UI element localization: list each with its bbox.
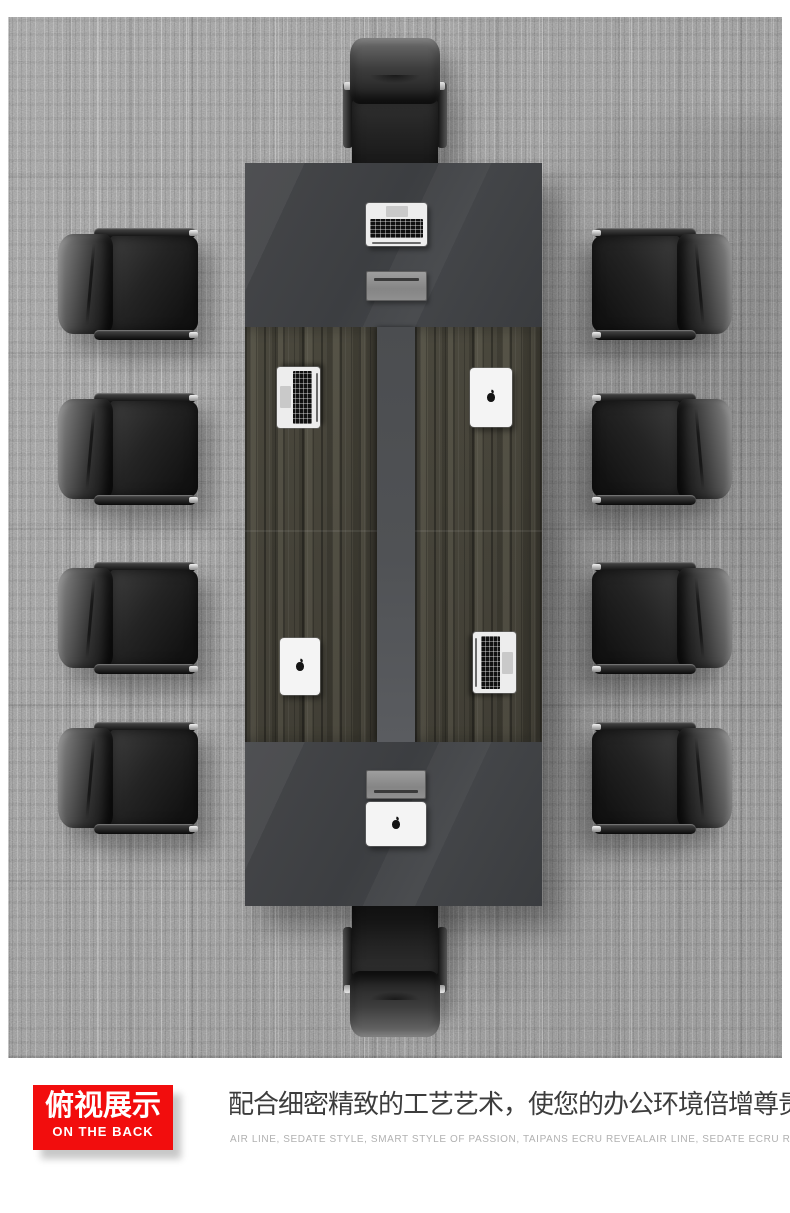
chair-armrest	[94, 330, 196, 340]
badge-title: 俯视展示	[33, 1090, 173, 1123]
chair-armrest	[94, 664, 196, 674]
chair-backrest	[677, 568, 732, 668]
tablet-mid-right	[470, 368, 512, 427]
chair-backrest	[58, 568, 113, 668]
chair-left-4	[58, 722, 198, 834]
chair-headrest	[350, 38, 440, 104]
chair-backrest	[677, 728, 732, 828]
chair-left-2	[58, 393, 198, 505]
chair-seat	[110, 570, 198, 666]
chair-armrest	[94, 495, 196, 505]
chair-backrest	[58, 234, 113, 334]
laptop-screen-edge	[316, 373, 318, 422]
laptop-screen-edge	[372, 242, 421, 244]
cable-box-top	[366, 271, 427, 301]
laptop-trackpad	[502, 652, 513, 674]
chair-armrest	[594, 330, 696, 340]
laptop-trackpad	[386, 206, 408, 217]
laptop-closed-bottom	[366, 802, 426, 846]
laptop-screen-edge	[475, 638, 477, 687]
caption-band: 俯视展示 ON THE BACK 配合细密精致的工艺艺术，使您的办公环境倍增尊贵…	[0, 1058, 790, 1213]
badge-subtitle: ON THE BACK	[33, 1123, 173, 1140]
cable-box-bottom	[366, 770, 426, 799]
laptop-trackpad	[280, 387, 291, 409]
chair-seat	[592, 236, 680, 332]
laptop-open-mid-left	[277, 367, 320, 428]
chair-armrest	[594, 824, 696, 834]
chair-right-4	[592, 722, 732, 834]
chair-seat	[592, 401, 680, 497]
product-photo-top-view	[8, 17, 782, 1058]
laptop-keyboard	[481, 636, 500, 689]
chair-right-3	[592, 562, 732, 674]
chair-seat	[592, 730, 680, 826]
chair-seat	[110, 730, 198, 826]
chair-armrest	[594, 495, 696, 505]
chair-left-3	[58, 562, 198, 674]
cable-slot	[374, 278, 419, 281]
laptop-keyboard	[370, 219, 423, 238]
chair-backrest	[677, 234, 732, 334]
laptop-open-low-right	[473, 632, 516, 693]
chair-headrest	[350, 971, 440, 1037]
apple-logo-icon	[487, 393, 495, 402]
chair-backrest	[58, 399, 113, 499]
tablet-low-left	[280, 638, 320, 695]
chair-armrest	[94, 824, 196, 834]
caption-headline: 配合细密精致的工艺艺术，使您的办公环境倍增尊贵气派	[228, 1089, 780, 1119]
apple-logo-icon	[392, 820, 400, 829]
chair-left-1	[58, 228, 198, 340]
table-center-runner	[377, 327, 415, 742]
chair-backrest	[677, 399, 732, 499]
chair-seat	[110, 401, 198, 497]
chair-seat	[592, 570, 680, 666]
chair-right-2	[592, 393, 732, 505]
chair-seat	[110, 236, 198, 332]
apple-logo-icon	[296, 662, 304, 671]
section-badge: 俯视展示 ON THE BACK	[33, 1085, 173, 1150]
product-detail-page: 俯视展示 ON THE BACK 配合细密精致的工艺艺术，使您的办公环境倍增尊贵…	[0, 0, 790, 1213]
chair-backrest	[58, 728, 113, 828]
caption-subline: AIR LINE, SEDATE STYLE, SMART STYLE OF P…	[230, 1134, 782, 1145]
chair-armrest	[594, 664, 696, 674]
laptop-keyboard	[293, 371, 312, 424]
chair-right-1	[592, 228, 732, 340]
cable-slot	[374, 790, 418, 793]
